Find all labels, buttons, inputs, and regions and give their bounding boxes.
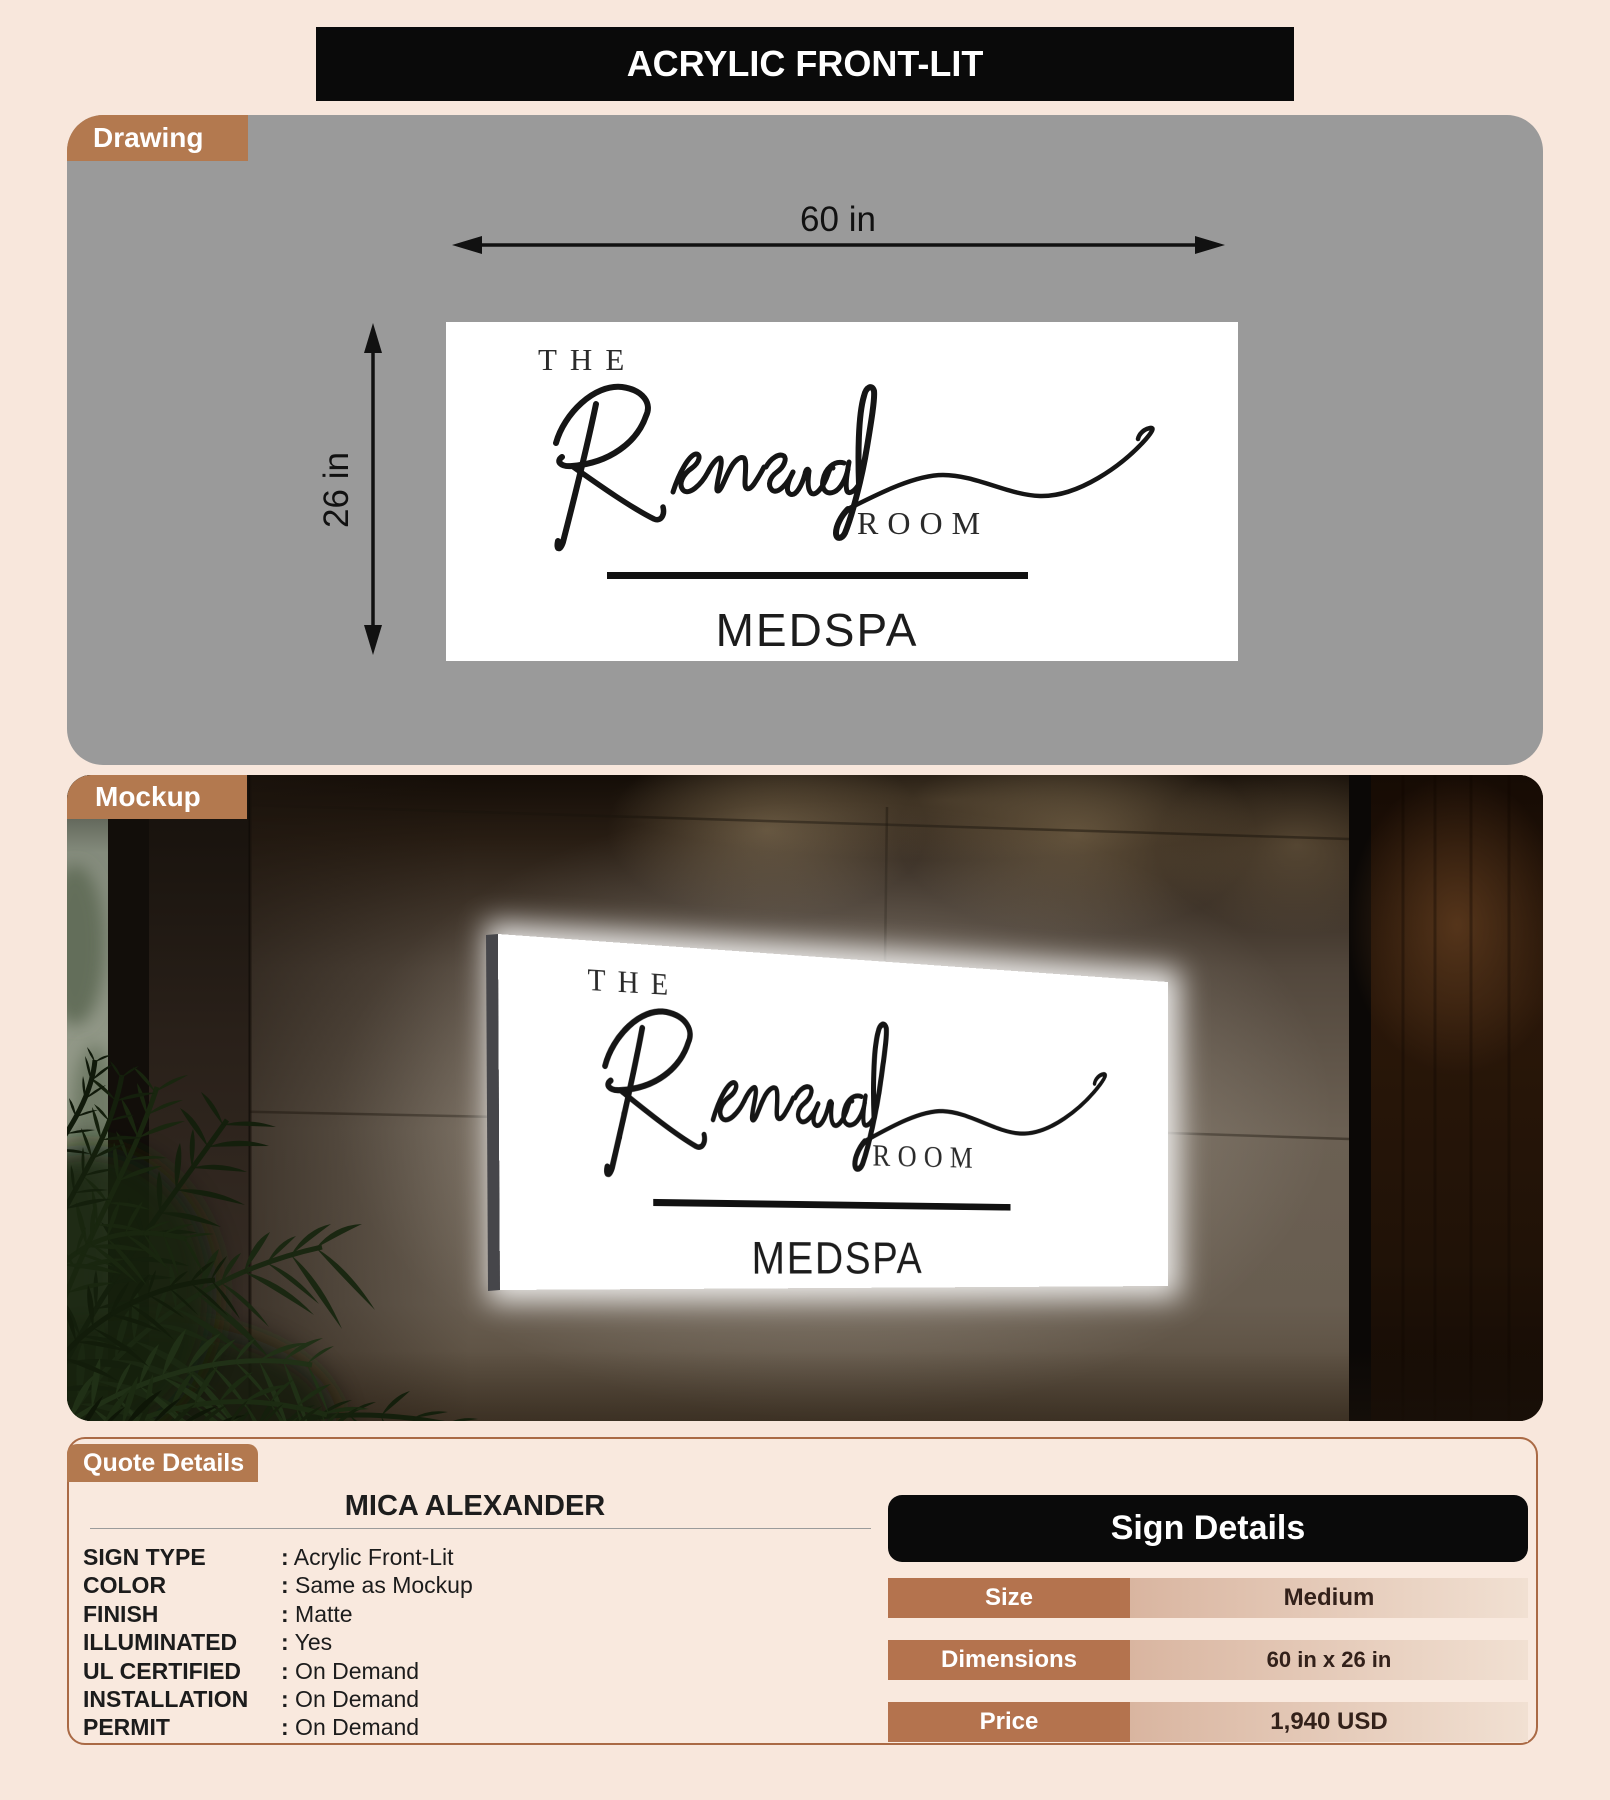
svg-text:26 in: 26 in — [317, 452, 356, 528]
svg-text:60 in: 60 in — [800, 200, 876, 239]
